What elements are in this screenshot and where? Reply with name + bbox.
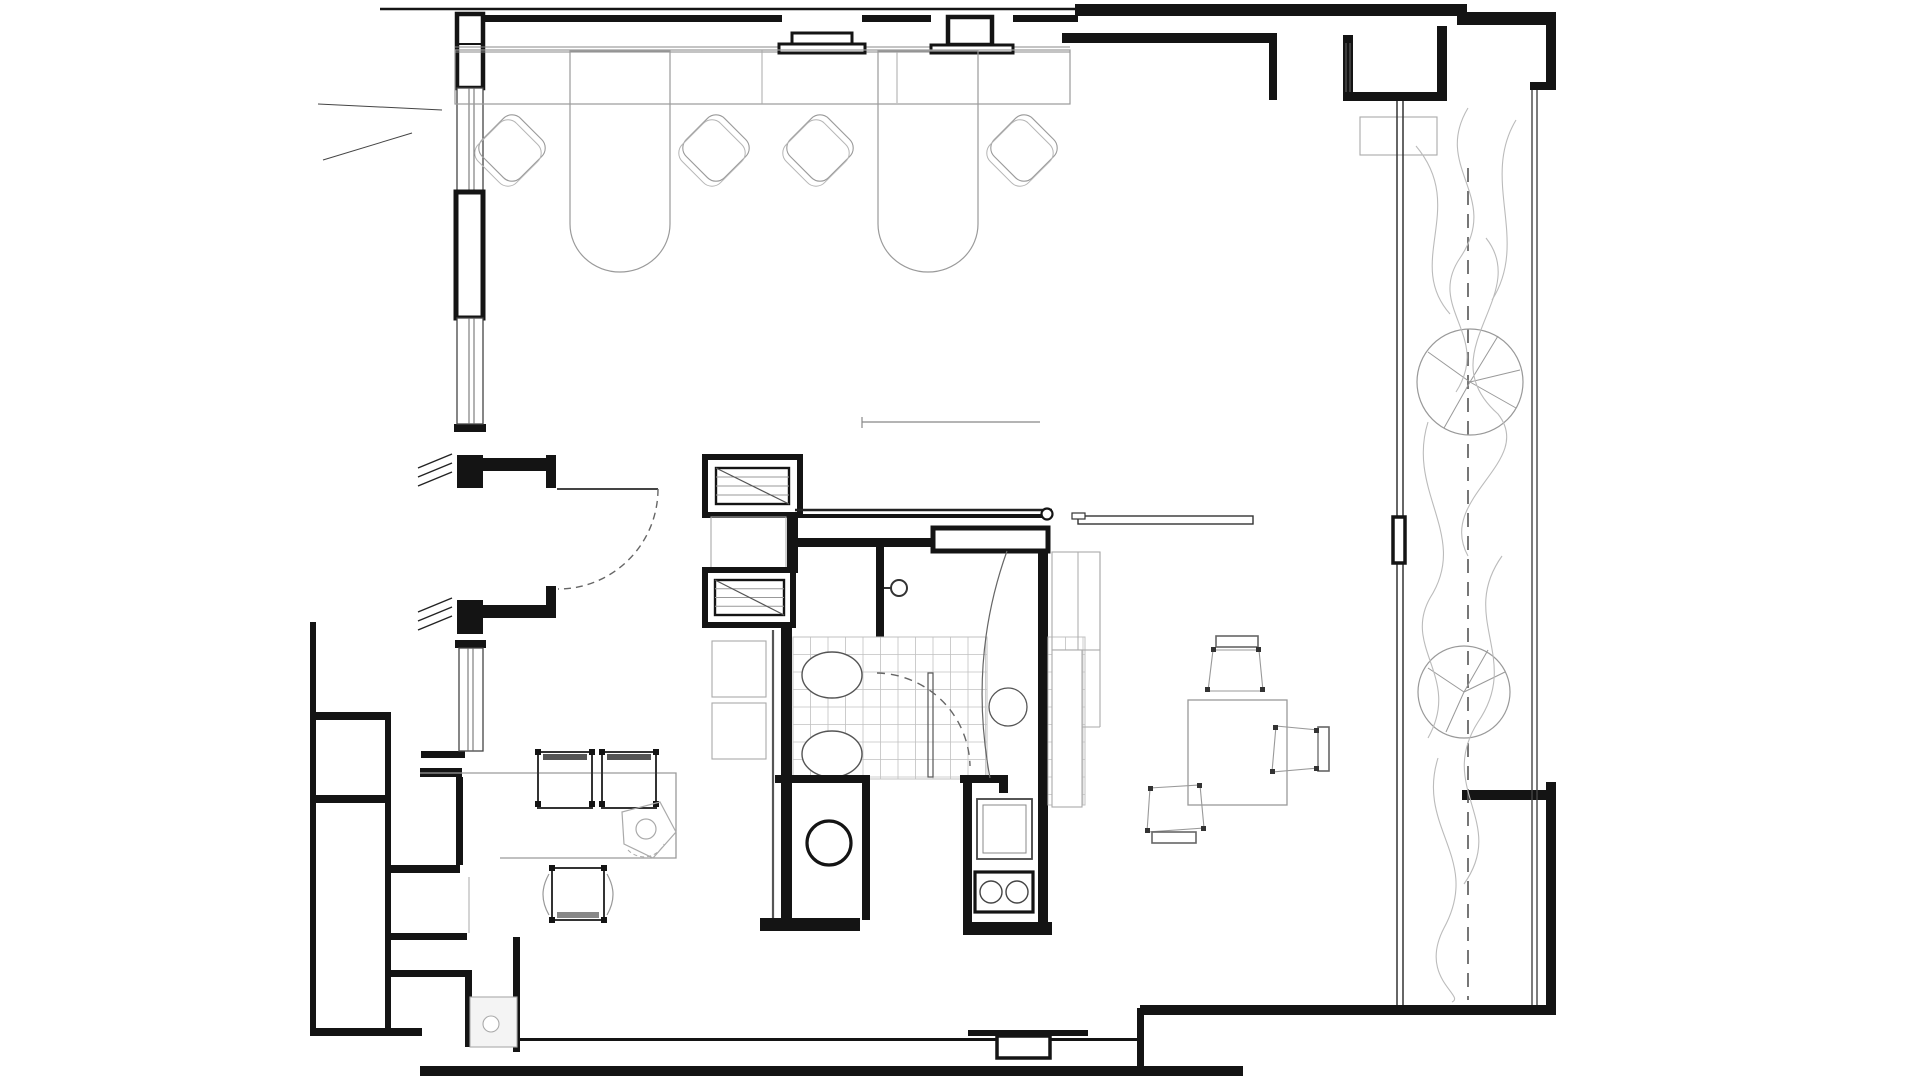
kitchen-bottom-bar (967, 922, 1052, 935)
bath-wall-top (793, 538, 940, 547)
vestibule-wall-v (456, 777, 463, 865)
shaft-lower-hatch (715, 580, 784, 615)
slide-door-cap (1042, 509, 1053, 520)
entry-jamb-bottom-block (457, 600, 483, 634)
stool-1-foot-4 (589, 801, 595, 807)
floor-plan-viewport (0, 0, 1920, 1080)
stool-2-foot-1 (599, 749, 605, 755)
stool-1-foot-2 (589, 749, 595, 755)
bath-wall-bottom-left (775, 775, 870, 783)
right-corner-wall (1546, 12, 1556, 90)
stove (975, 872, 1033, 912)
bath-wall-top-box (933, 528, 1048, 551)
top-wall-right (1075, 4, 1467, 16)
dining-chair-e-foot-4 (1314, 766, 1319, 771)
armchair-foot-2 (601, 865, 607, 871)
left-sill-window3-top (455, 640, 486, 648)
dining-chair-n-foot-4 (1260, 687, 1265, 692)
entry-jamb-bottom-end (546, 586, 556, 618)
outer-block-wall-v (310, 622, 316, 1035)
laundry-bottom-bar (760, 918, 860, 931)
dining-chair-e-foot-2 (1314, 728, 1319, 733)
left-sill-window3-bottom (421, 751, 465, 758)
washing-machine (807, 821, 851, 865)
top-wall-right-step (1457, 12, 1556, 25)
top-wall-band-right (1013, 15, 1078, 22)
bath-partition (876, 547, 884, 637)
entry-jamb-top-end (546, 455, 556, 488)
topright-inner-jamb (1269, 43, 1277, 100)
outer-block-bar-bottom (310, 1028, 422, 1036)
terrace-door-jamb-right (1437, 26, 1447, 101)
armchair-foot-1 (549, 865, 555, 871)
entry-jamb-top-arm (483, 458, 546, 471)
closet-bar-2 (387, 933, 467, 940)
bath-sink (989, 688, 1027, 726)
kitchen-wall-left (963, 783, 972, 935)
dining-chair-s-foot-3 (1145, 828, 1150, 833)
vent-unit-a-base (779, 44, 865, 53)
core-wall-right (1038, 551, 1048, 935)
dining-chair-s-foot-4 (1201, 826, 1206, 831)
shaft-upper-hatch (716, 468, 789, 504)
laundry-wall-right (862, 783, 870, 920)
stool-2-foot-2 (653, 749, 659, 755)
stool-1-foot-3 (535, 801, 541, 807)
top-wall-band-left (458, 15, 782, 22)
toilet (802, 652, 862, 698)
ac-unit-box (948, 17, 992, 45)
stool-1-foot-1 (535, 749, 541, 755)
wardrobe-lower (1052, 650, 1082, 807)
bath-wall-bottom-right (960, 775, 1008, 783)
armchair-foot-3 (549, 917, 555, 923)
entry-jamb-top-block (457, 455, 483, 488)
outer-block-bar-upper (310, 712, 390, 720)
armchair-foot-4 (601, 917, 607, 923)
bidet (802, 731, 862, 777)
top-wall-band-mid (862, 15, 931, 22)
stool-2-foot-3 (599, 801, 605, 807)
kitchen-sink-outer (977, 799, 1032, 859)
terrace-head-wall (1343, 92, 1447, 101)
vent-unit-b-base (931, 45, 1013, 53)
dining-chair-s-foot-1 (1148, 786, 1153, 791)
stool-1-back (543, 754, 587, 760)
terrace-bottom-corner (1462, 790, 1546, 800)
right-corner-cap (1530, 82, 1556, 90)
bath-wall-bottom-step (999, 783, 1008, 793)
dining-chair-n-foot-2 (1256, 647, 1261, 652)
partition-knob (891, 580, 907, 596)
dining-chair-n-foot-3 (1205, 687, 1210, 692)
window2-frame (457, 318, 483, 424)
dining-chair-n-foot-1 (1211, 647, 1216, 652)
utility-fixture (483, 1016, 499, 1032)
closet-bar-1 (387, 865, 460, 873)
bottomright-connector (1137, 1008, 1144, 1068)
leftwall-lower-v (385, 712, 391, 1035)
terrace-door-jamb-left (1343, 35, 1353, 101)
closet-bar-3 (387, 970, 472, 977)
floor-plan-drawing (0, 0, 1920, 1080)
radiator-box (997, 1036, 1050, 1058)
outer-block-bar-lower (310, 795, 390, 803)
dining-chair-s-foot-2 (1197, 783, 1202, 788)
left-pier-top (457, 14, 483, 88)
hall-counter (1078, 516, 1253, 524)
terrace-door-handle (1393, 517, 1405, 563)
terrace-bottom-wall (1140, 1005, 1556, 1015)
stool-2-back (607, 754, 651, 760)
left-pier-mid (456, 192, 483, 318)
dining-chair-e-foot-3 (1270, 769, 1275, 774)
left-sill-upper (454, 424, 486, 432)
topright-inner-band (1062, 33, 1277, 43)
entry-jamb-bottom-arm (483, 605, 546, 618)
armchair-back (557, 912, 599, 918)
hall-counter-notch (1072, 513, 1085, 519)
dining-chair-e-foot-1 (1273, 725, 1278, 730)
terrace-right-wall-lower (1546, 782, 1556, 1015)
vent-unit-a-top (792, 33, 852, 44)
window3-frame (459, 648, 483, 751)
bottom-wall-outer (420, 1066, 1243, 1076)
screenshot-root: { "canvas": {"width": 1920, "height": 10… (0, 0, 1920, 1080)
